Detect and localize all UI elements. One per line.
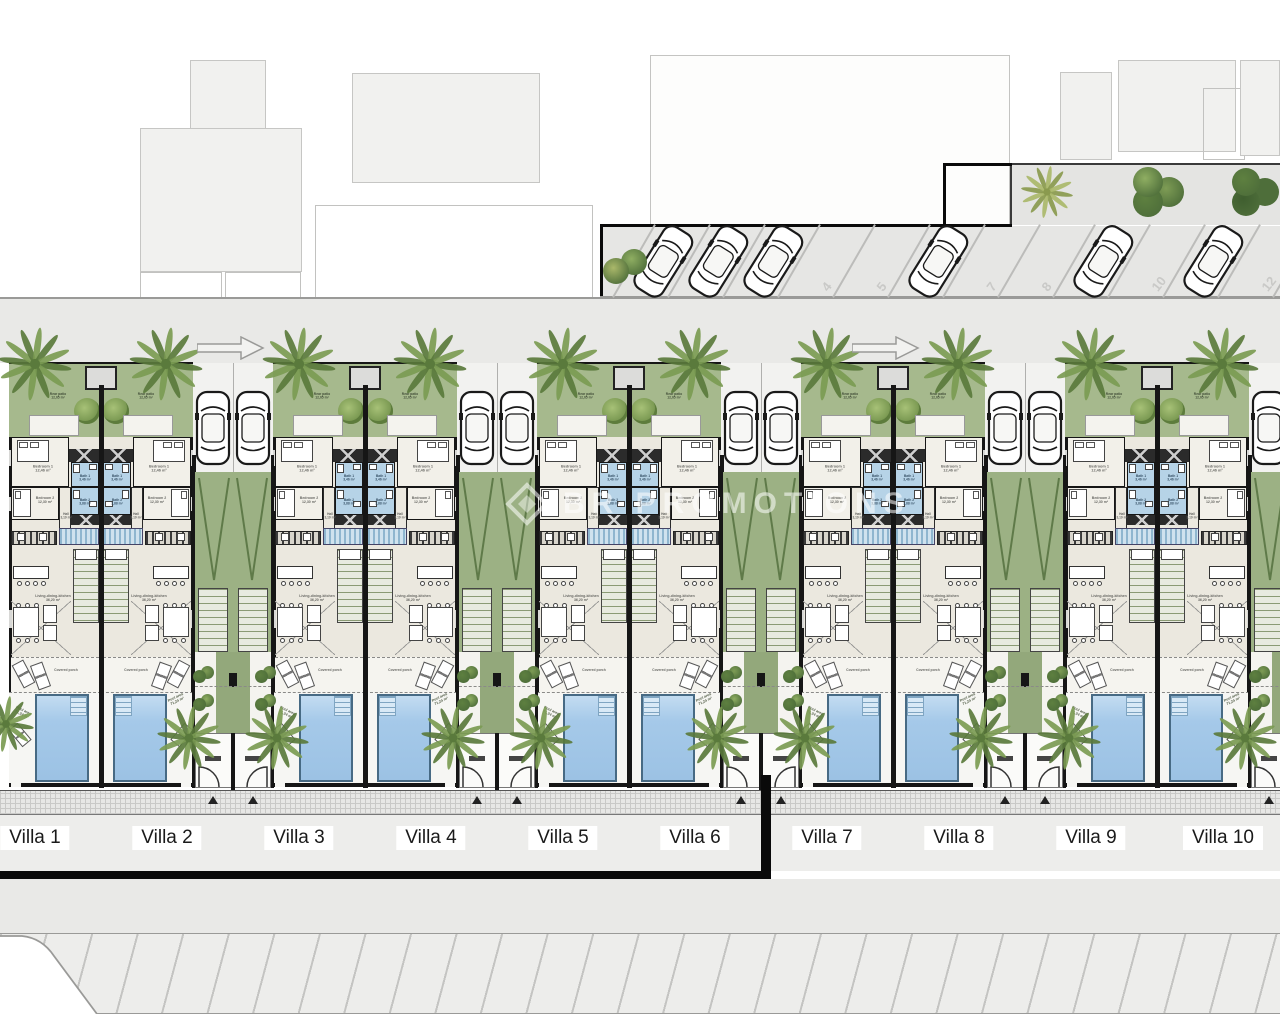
villa-label-1: Villa 1 <box>0 826 69 850</box>
rear-terrace <box>293 415 343 436</box>
villa-10-stool <box>1236 581 1241 586</box>
villa-label-10: Villa 10 <box>1183 826 1263 850</box>
palm-tree-icon <box>156 705 222 776</box>
villa-9-front-wall <box>1065 783 1157 787</box>
villa-4-kitchen-island <box>417 566 453 579</box>
villa-label-4: Villa 4 <box>396 826 465 850</box>
bush-icon <box>1232 168 1260 196</box>
villa-7-chair <box>808 638 813 643</box>
entrance-step-marker <box>512 796 522 804</box>
rear-terrace <box>387 415 437 436</box>
villa-2-toilet <box>122 464 129 473</box>
villa-4-hall-label: Hall 3,19 m² <box>389 512 411 519</box>
villa-8-appliance <box>947 533 955 541</box>
villa-4-hall <box>395 487 407 532</box>
villa-7-appliance <box>831 533 839 541</box>
villa-1-wardrobe <box>69 449 99 462</box>
villa-1-chair <box>16 603 21 608</box>
phase-boundary-vertical <box>761 775 771 879</box>
watermark-logo-icon <box>505 482 549 526</box>
villa-3-chair <box>289 638 294 643</box>
villa-7-stool <box>817 581 822 586</box>
villa-6-front-wall <box>629 783 721 787</box>
villa-6-sink <box>633 464 641 470</box>
villa-3-hall-label: Hall 3,19 m² <box>319 512 341 519</box>
villa-3-stool <box>305 581 310 586</box>
villa-5-stairs <box>601 549 627 623</box>
villa-10-hall <box>1187 487 1199 532</box>
villa-4-appliance <box>441 533 449 541</box>
villa-7-bath1-label: Bath 1 3,46 m² <box>864 474 890 482</box>
villa-8-hall-label: Hall 3,19 m² <box>917 512 939 519</box>
villa-4-wardrobe <box>367 449 397 462</box>
villa-4-porch-label: Covered porch <box>383 668 417 672</box>
villa-3-sofa <box>307 625 321 641</box>
rear-terrace <box>557 415 607 436</box>
villa-2-stool <box>172 581 177 586</box>
villa-5-sofa <box>571 605 585 623</box>
villa-8-stair-landing <box>897 549 919 560</box>
villa-4-front-gate <box>445 783 455 787</box>
villa-10-sink <box>1161 464 1169 470</box>
villa-2-stool <box>180 581 185 586</box>
villa-4-front-wall <box>365 783 457 787</box>
parking-boundary <box>943 165 946 226</box>
villa-9-pillow <box>1075 442 1084 448</box>
villa-10-toilet <box>1178 464 1185 473</box>
villa-4-pillow <box>438 442 447 448</box>
driveway-exterior-stairs <box>726 588 756 652</box>
villa-1-chair <box>16 638 21 643</box>
villa-7-chair <box>826 603 831 608</box>
villa-2-hall <box>131 487 143 532</box>
villa-3-sink <box>353 464 361 470</box>
villa-5-bath1-label: Bath 1 3,46 m² <box>600 474 626 482</box>
villa-1-chair <box>34 638 39 643</box>
villa-4-sofa <box>409 605 423 623</box>
villa-4-stool <box>420 581 425 586</box>
driveway-stub-wall <box>229 673 237 687</box>
villa-10-chair <box>1228 638 1233 643</box>
villa-9-bath2-label: Bath 2 3,88 m² <box>1128 498 1154 506</box>
watermark: BR PROMOTIONS <box>505 482 911 526</box>
palm-tree-icon <box>420 705 486 776</box>
entrance-step-marker <box>248 796 258 804</box>
villa-5-appliance <box>567 533 575 541</box>
villa-7-front-gate <box>803 783 813 787</box>
villa-10-stool <box>1220 581 1225 586</box>
street-palm-icon <box>656 326 732 407</box>
neighbor-building <box>352 73 540 183</box>
villa-8-stool <box>972 581 977 586</box>
villa-9-sofa <box>1099 625 1113 641</box>
villa-10-sofa <box>1201 625 1215 641</box>
party-wall <box>99 385 104 788</box>
villa-7-stairs <box>865 549 891 623</box>
rear-terrace <box>821 415 871 436</box>
villa-8-stool <box>948 581 953 586</box>
villa-10-chair <box>1237 638 1242 643</box>
entrance-step-marker <box>1000 796 1010 804</box>
villa-2-chair <box>172 638 177 643</box>
villa-1-pillow <box>15 491 21 499</box>
villa-9-stool <box>1089 581 1094 586</box>
villa-7-chair <box>817 638 822 643</box>
villa-2-stair-landing <box>105 549 127 560</box>
neighbor-building <box>190 60 266 132</box>
villa-8-sofa <box>937 625 951 641</box>
driveway-exterior-stairs <box>198 588 228 652</box>
villa-9-chair <box>1072 638 1077 643</box>
villa-1-bath1-label: Bath 1 3,46 m² <box>72 474 98 482</box>
villa-6-dining-table <box>691 607 717 637</box>
villa-6-stool <box>708 581 713 586</box>
bush-icon <box>1133 167 1163 197</box>
villa-2-sink <box>105 464 113 470</box>
villa-10-appliance <box>1233 533 1241 541</box>
road-arrow-icon <box>852 336 922 360</box>
villa-8-sink <box>897 464 905 470</box>
villa-1-pillow <box>19 442 28 448</box>
agave-plant-icon <box>1020 165 1074 224</box>
villa-6-chair <box>700 603 705 608</box>
villa-10-bath1-label: Bath 1 3,46 m² <box>1160 474 1186 482</box>
villa-9-kitchen-island <box>1069 566 1105 579</box>
villa-label-9: Villa 9 <box>1056 826 1125 850</box>
palm-tree-icon <box>508 705 574 776</box>
parking-boundary <box>943 163 1012 166</box>
villa-7-wardrobe <box>861 449 891 462</box>
villa-2-chair <box>181 638 186 643</box>
villa-2-stool <box>164 581 169 586</box>
villa-2-pool-steps <box>115 696 132 716</box>
villa-5-chair <box>553 603 558 608</box>
villa-8-pillow <box>955 442 964 448</box>
villa-3-bedroom2-label: Bedroom 2 12,30 m² <box>295 496 323 504</box>
neighbor-building <box>1240 60 1280 156</box>
villa-2-appliance <box>155 533 163 541</box>
villa-1-appliance <box>17 533 25 541</box>
entrance-step-marker <box>1264 796 1274 804</box>
palm-tree-icon <box>684 705 750 776</box>
palm-tree-icon <box>0 695 35 758</box>
villa-2-chair <box>172 603 177 608</box>
driveway-exterior-stairs <box>1254 588 1280 652</box>
villa-8-pillow <box>966 442 975 448</box>
villa-10-chair <box>1228 603 1233 608</box>
villa-6-stool <box>692 581 697 586</box>
villa-7-patio-skylight <box>851 528 891 545</box>
neighbor-building <box>1060 72 1112 160</box>
villa-6-front-gate <box>709 783 719 787</box>
villa-7-stool <box>825 581 830 586</box>
villa-label-3: Villa 3 <box>264 826 333 850</box>
villa-9-appliance <box>1095 533 1103 541</box>
villa-5-sink <box>617 464 625 470</box>
villa-10-dining-table <box>1219 607 1245 637</box>
villa-8-chair <box>955 638 960 643</box>
street-palm-icon <box>920 326 996 407</box>
rear-terrace <box>1179 415 1229 436</box>
villa-7-chair <box>817 603 822 608</box>
villa-1-sofa <box>43 625 57 641</box>
villa-2-bath2-label: Bath 2 3,88 m² <box>104 498 130 506</box>
villa-3-front-gate <box>275 783 285 787</box>
villa-6-stool <box>684 581 689 586</box>
villa-5-chair <box>544 603 549 608</box>
villa-9-terrace-dash <box>1065 692 1157 693</box>
villa-3-appliance <box>281 533 289 541</box>
villa-7-stair-landing <box>867 549 889 560</box>
villa-8-front-wall <box>893 783 985 787</box>
neighbor-parcel <box>1203 88 1245 160</box>
neighbor-building <box>140 128 302 272</box>
villa-5-pillow <box>558 442 567 448</box>
villa-2-chair <box>181 603 186 608</box>
villa-10-wardrobe <box>1159 449 1189 462</box>
villa-3-stairs <box>337 549 363 623</box>
villa-6-chair <box>700 638 705 643</box>
villa-8-bedroom1-label: Bedroom 1 12,46 m² <box>929 464 973 473</box>
villa-5-patio-skylight <box>587 528 627 545</box>
driveway-pergola-lines <box>1251 474 1280 591</box>
villa-9-porch-label: Covered porch <box>1105 668 1139 672</box>
entrance-step-marker <box>472 796 482 804</box>
villa-6-chair <box>691 638 696 643</box>
villa-7-bedroom1-label: Bedroom 1 12,46 m² <box>813 464 857 473</box>
villa-5-toilet <box>601 464 608 473</box>
villa-label-5: Villa 5 <box>528 826 597 850</box>
shrub-icon <box>783 670 796 683</box>
villa-8-stool <box>956 581 961 586</box>
villa-9-chair <box>1090 603 1095 608</box>
driveway-stub-wall <box>493 673 501 687</box>
villa-1-stairs <box>73 549 99 623</box>
villa-8-dining-table <box>955 607 981 637</box>
villa-5-chair <box>553 638 558 643</box>
shrub-icon <box>1047 670 1060 683</box>
villa-4-stairs <box>367 549 393 623</box>
driveway-pergola-lines <box>987 474 1063 591</box>
entrance-step-marker <box>1040 796 1050 804</box>
villa-1-kitchen-island <box>13 566 49 579</box>
villa-3-chair <box>289 603 294 608</box>
villa-2-stairs <box>103 549 129 623</box>
palm-tree-icon <box>1212 705 1278 776</box>
villa-6-stool <box>700 581 705 586</box>
villa-9-stool <box>1081 581 1086 586</box>
villa-2-bath1-label: Bath 1 3,46 m² <box>104 474 130 482</box>
party-wall <box>1155 385 1160 788</box>
villa-7-kitchen-island <box>805 566 841 579</box>
villa-3-chair <box>298 603 303 608</box>
villa-5-front-wall <box>537 783 629 787</box>
villa-7-pillow <box>811 442 820 448</box>
villa-3-bath1-label: Bath 1 3,46 m² <box>336 474 362 482</box>
villa-5-stool <box>569 581 574 586</box>
villa-1-bath2-label: Bath 2 3,88 m² <box>72 498 98 506</box>
villa-2-pillow <box>174 442 183 448</box>
villa-10-bath2-label: Bath 2 3,88 m² <box>1160 498 1186 506</box>
villa-2-dining-table <box>163 607 189 637</box>
villa-8-patio-skylight <box>895 528 935 545</box>
driveway-stub-wall <box>757 673 765 687</box>
villa-9-pool-steps <box>1126 696 1143 716</box>
villa-6-wardrobe <box>631 449 661 462</box>
villa-6-chair <box>709 603 714 608</box>
shrub-icon <box>985 670 998 683</box>
villa-1-pool-steps <box>70 696 87 716</box>
villa-5-terrace-dash <box>537 692 629 693</box>
villa-1-chair <box>25 603 30 608</box>
rear-terrace <box>29 415 79 436</box>
villa-1-hall-label: Hall 3,19 m² <box>55 512 77 519</box>
villa-6-toilet <box>650 464 657 473</box>
villa-5-stool <box>561 581 566 586</box>
villa-4-pillow <box>445 491 451 499</box>
villa-6-pillow <box>691 442 700 448</box>
driveway-dash-line <box>1251 686 1280 687</box>
villa-1-sink <box>89 464 97 470</box>
villa-3-stair-landing <box>339 549 361 560</box>
villa-3-chair <box>298 638 303 643</box>
villa-8-bath1-label: Bath 1 3,46 m² <box>896 474 922 482</box>
villa-7-front-wall <box>801 783 893 787</box>
page-bottom <box>0 1014 1280 1024</box>
watermark-text: BR PROMOTIONS <box>563 487 911 521</box>
parking-boundary <box>600 224 603 298</box>
villa-4-sofa <box>409 625 423 641</box>
villa-label-8: Villa 8 <box>924 826 993 850</box>
driveway-dash-line <box>195 686 271 687</box>
street-palm-icon <box>128 326 204 407</box>
villa-6-pool-steps <box>643 696 660 716</box>
villa-10-sofa <box>1201 605 1215 623</box>
villa-3-front-wall <box>273 783 365 787</box>
villa-10-pillow <box>1219 442 1228 448</box>
villa-1-hall <box>59 487 71 532</box>
villa-6-bath1-label: Bath 1 3,46 m² <box>632 474 658 482</box>
villa-8-wardrobe <box>895 449 925 462</box>
villa-1-terrace-dash <box>9 692 101 693</box>
villa-9-stair-landing <box>1131 549 1153 560</box>
villa-1-dining-table <box>13 607 39 637</box>
villa-5-wardrobe <box>597 449 627 462</box>
villa-4-dining-table <box>427 607 453 637</box>
villa-4-pillow <box>427 442 436 448</box>
villa-4-chair <box>436 603 441 608</box>
villa-1-front-gate <box>11 783 21 787</box>
phase-boundary-horizontal <box>0 871 766 879</box>
villa-5-stool <box>553 581 558 586</box>
shrub-icon <box>519 670 532 683</box>
villa-9-wardrobe <box>1125 449 1155 462</box>
palm-tree-icon <box>1036 705 1102 776</box>
villa-2-pillow <box>163 442 172 448</box>
entrance-step-marker <box>208 796 218 804</box>
villa-6-appliance <box>705 533 713 541</box>
villa-4-bath2-label: Bath 2 3,88 m² <box>368 498 394 506</box>
bush-icon <box>603 258 629 284</box>
villa-8-pool-steps <box>907 696 924 716</box>
villa-7-pool-steps <box>862 696 879 716</box>
villa-6-chair <box>691 603 696 608</box>
villa-3-kitchen-island <box>277 566 313 579</box>
villa-4-bedroom1-label: Bedroom 1 12,46 m² <box>401 464 445 473</box>
villa-5-pillow <box>547 442 556 448</box>
villa-10-front-gate <box>1237 783 1247 787</box>
villa-label-7: Villa 7 <box>792 826 861 850</box>
villa-4-stool <box>428 581 433 586</box>
villa-10-patio-skylight <box>1159 528 1199 545</box>
villa-10-chair <box>1237 603 1242 608</box>
villa-4-pool-steps <box>379 696 396 716</box>
villa-9-front-gate <box>1067 783 1077 787</box>
villa-4-chair <box>445 638 450 643</box>
villa-7-stool <box>809 581 814 586</box>
rear-terrace <box>123 415 173 436</box>
villa-8-stool <box>964 581 969 586</box>
villa-5-porch-label: Covered porch <box>577 668 611 672</box>
villa-2-chair <box>163 638 168 643</box>
villa-10-pool-steps <box>1171 696 1188 716</box>
villa-7-toilet <box>865 464 872 473</box>
villa-3-hall <box>323 487 335 532</box>
villa-1-toilet <box>73 464 80 473</box>
villa-1-stair-landing <box>75 549 97 560</box>
road-arrow-icon <box>197 336 267 360</box>
palm-tree-icon <box>772 705 838 776</box>
villa-4-bedroom2-label: Bedroom 2 12,30 m² <box>407 496 435 504</box>
villa-8-sofa <box>937 605 951 623</box>
villa-5-chair <box>544 638 549 643</box>
villa-2-bedroom1-label: Bedroom 1 12,46 m² <box>137 464 181 473</box>
villa-9-bath1-label: Bath 1 3,46 m² <box>1128 474 1154 482</box>
villa-9-pillow <box>1071 491 1077 499</box>
villa-2-chair <box>163 603 168 608</box>
lower-road <box>0 879 1280 933</box>
villa-5-pool-steps <box>598 696 615 716</box>
party-wall <box>363 385 368 788</box>
villa-9-sofa <box>1099 605 1113 623</box>
villa-10-front-wall <box>1157 783 1249 787</box>
driveway-exterior-stairs <box>1030 588 1060 652</box>
villa-10-pillow <box>1237 491 1243 499</box>
villa-8-appliance <box>969 533 977 541</box>
villa-9-toilet <box>1129 464 1136 473</box>
rear-terrace <box>1085 415 1135 436</box>
villa-3-terrace-dash <box>273 692 365 693</box>
villa-8-chair <box>964 638 969 643</box>
villa-7-stool <box>833 581 838 586</box>
villa-3-appliance <box>303 533 311 541</box>
rear-terrace <box>651 415 701 436</box>
villa-4-bath1-label: Bath 1 3,46 m² <box>368 474 394 482</box>
villa-4-stool <box>436 581 441 586</box>
villa-10-stool <box>1212 581 1217 586</box>
villa-9-stool <box>1097 581 1102 586</box>
villa-1-stool <box>17 581 22 586</box>
villa-1-bedroom2-label: Bedroom 2 12,30 m² <box>31 496 59 504</box>
villa-9-pillow <box>1086 442 1095 448</box>
villa-3-bedroom1-label: Bedroom 1 12,46 m² <box>285 464 329 473</box>
palm-tree-icon <box>948 705 1014 776</box>
villa-1-appliance <box>39 533 47 541</box>
villa-1-front-wall <box>9 783 101 787</box>
villa-8-stairs <box>895 549 921 623</box>
villa-7-pillow <box>822 442 831 448</box>
villa-9-patio-skylight <box>1115 528 1155 545</box>
